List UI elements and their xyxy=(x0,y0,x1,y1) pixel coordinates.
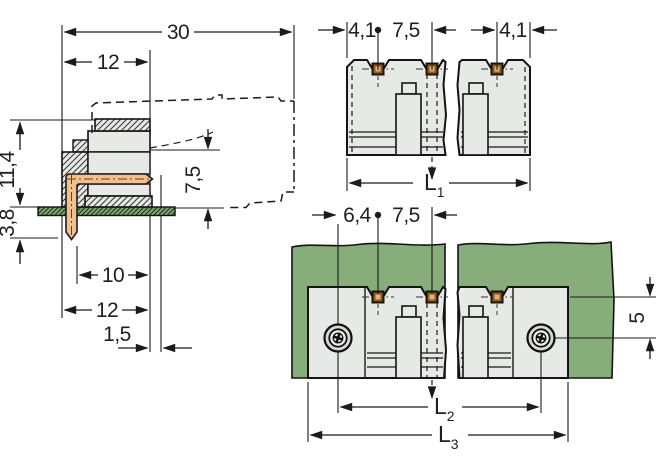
dim-pin-pitch-board-label: 7,5 xyxy=(392,204,420,227)
dim-pin-length-label: 3,8 xyxy=(0,209,19,237)
dim-L2-label: L2 xyxy=(434,393,455,424)
dim-mating-height: 7,5 xyxy=(182,129,208,229)
dim-pin-length-below-board: 3,8 xyxy=(0,209,20,264)
dim-pin-to-face: 10 xyxy=(80,264,148,287)
board-mounted-view: 6,4 7,5 5 L2 L3 xyxy=(292,204,656,452)
mounting-screw-right xyxy=(528,325,555,352)
dim-L3-label: L3 xyxy=(438,421,459,452)
dim-L3: L3 xyxy=(311,421,566,452)
dim-dot xyxy=(375,212,381,218)
side-view-extension-lines xyxy=(10,25,294,352)
dim-face-offset: 1,5 xyxy=(103,323,192,348)
technical-drawing-sheet: 30 12 11,4 3,8 7,5 10 xyxy=(0,0,672,467)
dim-pin-to-edge-label: 4,1 xyxy=(499,19,527,42)
dim-L1: L1 xyxy=(347,158,530,200)
dim-body-depth-top: 12 xyxy=(65,51,148,74)
dim-overall-depth: 30 xyxy=(65,21,292,44)
board-view-top-dimensions: 6,4 7,5 xyxy=(312,204,457,227)
pcb-cross-section xyxy=(38,207,175,216)
dim-mating-height-label: 7,5 xyxy=(182,166,205,194)
dim-screw-to-pin-label: 6,4 xyxy=(343,204,372,227)
dim-pin-row-to-screw-label: 5 xyxy=(626,312,649,323)
dim-body-depth-top-label: 12 xyxy=(97,51,119,74)
dim-pin-to-face-label: 10 xyxy=(102,264,124,287)
dim-body-depth-bottom: 12 xyxy=(65,299,148,322)
top-view: 4,1 7,5 4,1 L1 xyxy=(318,19,557,200)
dim-L1-label: L1 xyxy=(424,169,445,200)
dim-pin-pitch-label: 7,5 xyxy=(392,19,420,42)
side-section-view: 30 12 11,4 3,8 7,5 10 xyxy=(0,21,294,352)
dim-overall-depth-label: 30 xyxy=(167,21,189,44)
dim-edge-to-pin-label: 4,1 xyxy=(348,19,376,42)
dim-height-above-board: 11,4 xyxy=(0,123,20,205)
dim-pin-row-to-screw: 5 xyxy=(626,277,650,359)
dim-face-offset-label: 1,5 xyxy=(103,323,131,346)
mounting-screw-left xyxy=(325,325,352,352)
dim-L2: L2 xyxy=(341,393,539,424)
drawing-canvas: 30 12 11,4 3,8 7,5 10 xyxy=(0,0,672,467)
dim-body-depth-bottom-label: 12 xyxy=(96,299,118,322)
dim-height-above-board-label: 11,4 xyxy=(0,151,19,189)
